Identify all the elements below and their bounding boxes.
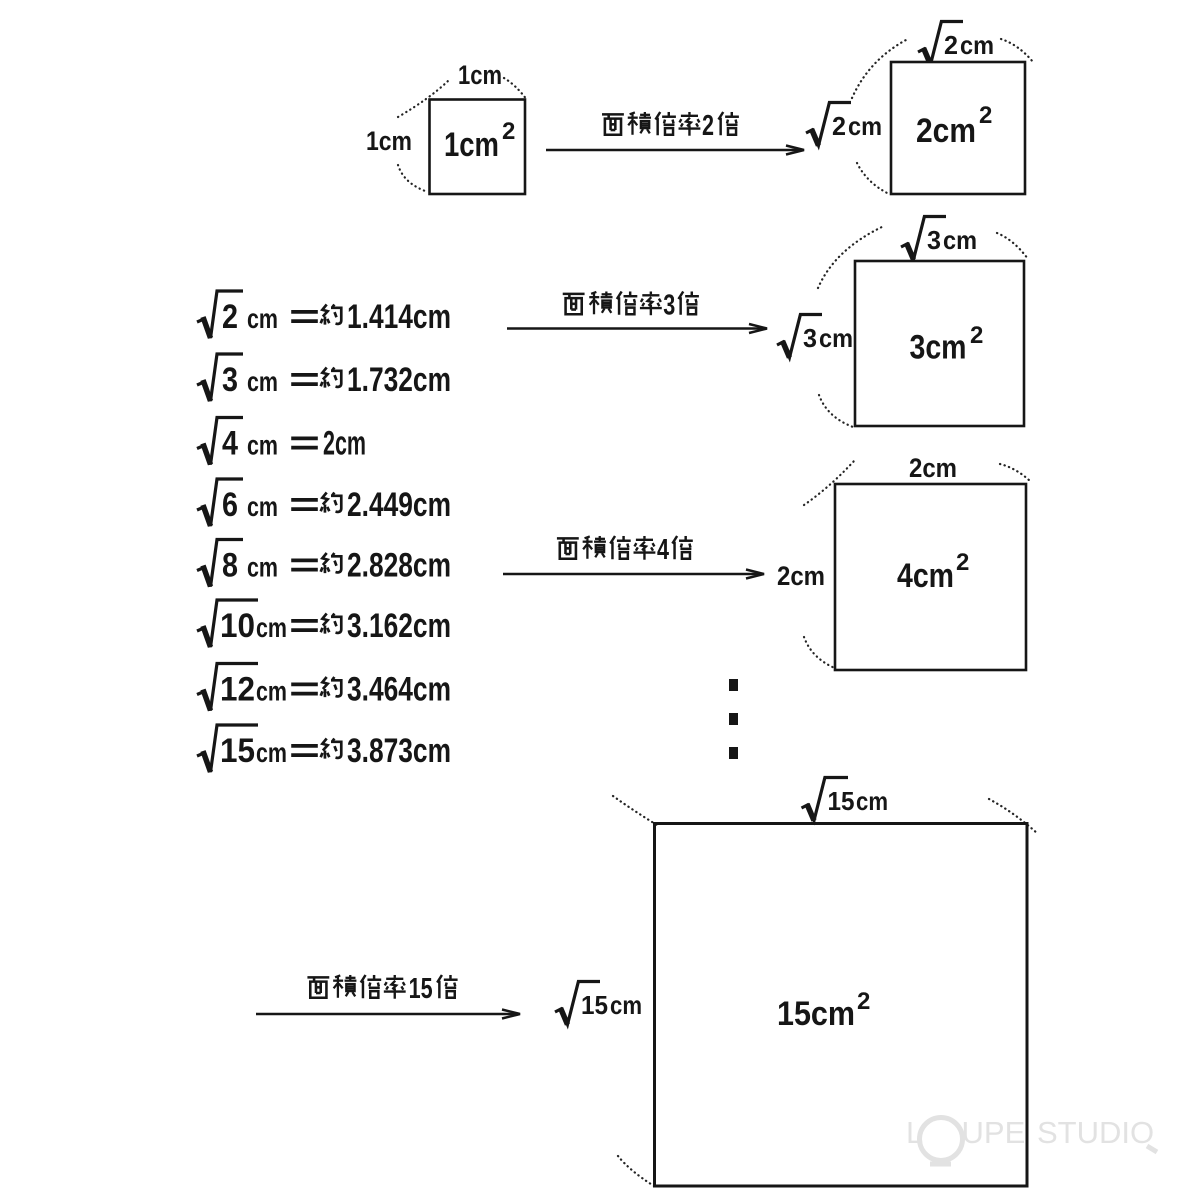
svg-text:cm: cm [610,990,642,1020]
svg-text:2.449cm: 2.449cm [347,486,451,524]
svg-text:6: 6 [222,486,238,524]
svg-text:2: 2 [979,102,992,129]
svg-text:2cm: 2cm [916,112,976,150]
svg-text:15: 15 [828,786,855,816]
svg-text:=: = [289,486,320,524]
svg-text:2: 2 [222,298,238,336]
svg-text:2: 2 [832,111,846,141]
svg-text:cm: cm [819,323,853,353]
svg-text:=: = [289,425,320,463]
svg-text:15: 15 [581,990,608,1020]
svg-text:2: 2 [970,322,983,349]
svg-text:cm: cm [247,430,278,461]
svg-text:3.464cm: 3.464cm [347,671,451,709]
svg-text:15: 15 [409,973,433,1005]
svg-text:1cm: 1cm [444,126,499,164]
svg-text:1cm: 1cm [458,60,502,90]
svg-text:2cm: 2cm [323,425,366,463]
svg-text:cm: cm [256,612,287,643]
svg-text:2.828cm: 2.828cm [347,547,451,585]
svg-text:3: 3 [803,323,817,353]
svg-text:2: 2 [944,30,958,60]
svg-text:cm: cm [856,786,888,816]
svg-text:cm: cm [256,676,287,707]
svg-text:3cm: 3cm [910,329,967,367]
svg-text:=: = [289,607,320,645]
svg-text:cm: cm [247,491,278,522]
svg-text:=: = [289,732,320,770]
svg-text:STUDIO: STUDIO [1037,1115,1154,1150]
svg-text:cm: cm [943,225,977,255]
svg-text:2cm: 2cm [909,453,957,483]
svg-text:3: 3 [222,361,238,399]
svg-text:=: = [289,298,320,336]
svg-text:1.414cm: 1.414cm [347,298,451,336]
svg-text:8: 8 [222,547,238,585]
svg-text:10: 10 [220,607,255,645]
svg-text:cm: cm [960,30,994,60]
svg-text:2: 2 [857,988,870,1015]
svg-text:3.162cm: 3.162cm [347,607,451,645]
svg-text:cm: cm [247,552,278,583]
svg-text:2cm: 2cm [777,561,825,591]
svg-text:15: 15 [220,732,255,770]
svg-text:4cm: 4cm [897,557,954,595]
svg-text:3: 3 [663,290,675,322]
svg-text:=: = [289,671,320,709]
svg-text:=: = [289,547,320,585]
svg-text:15cm: 15cm [777,995,855,1033]
svg-text:4: 4 [222,425,238,463]
svg-text:2: 2 [702,110,714,142]
svg-text:cm: cm [256,737,287,768]
svg-text:cm: cm [247,366,278,397]
svg-text:3.873cm: 3.873cm [347,732,451,770]
svg-text:cm: cm [247,303,278,334]
svg-text:4: 4 [657,534,669,566]
svg-text:1cm: 1cm [366,126,412,156]
svg-text:12: 12 [220,671,255,709]
svg-text:3: 3 [927,225,941,255]
svg-text:2: 2 [502,118,515,145]
svg-text:cm: cm [848,111,882,141]
svg-text:2: 2 [956,549,969,576]
svg-text:UPE: UPE [962,1115,1026,1150]
svg-text:=: = [289,361,320,399]
svg-text:1.732cm: 1.732cm [347,361,451,399]
